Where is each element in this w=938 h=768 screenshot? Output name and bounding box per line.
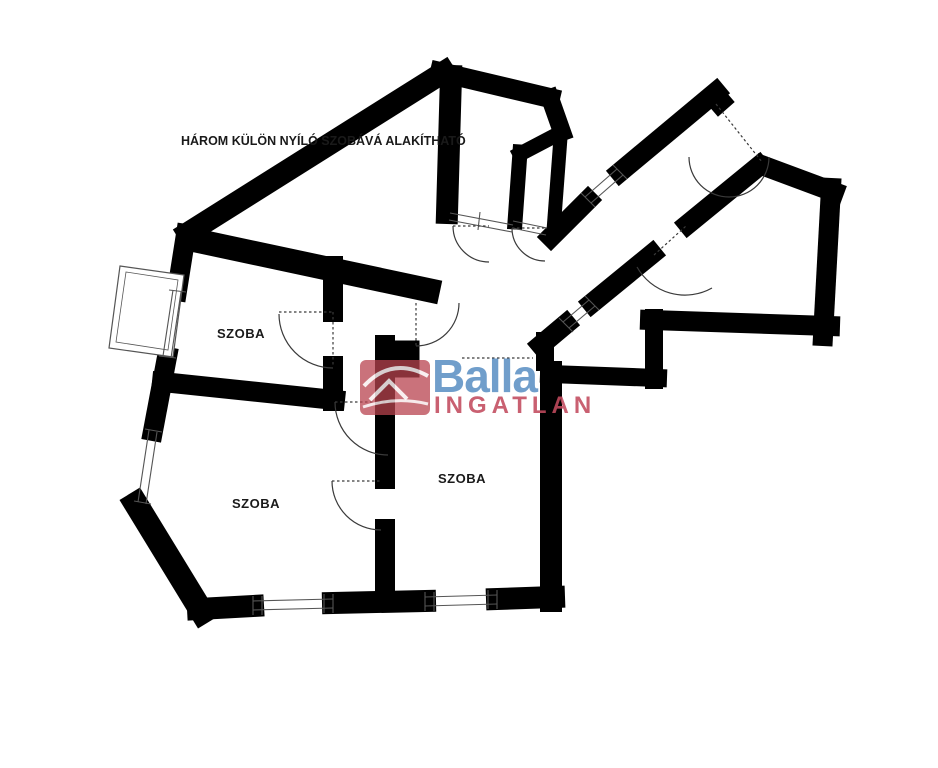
room-label-1: SZOBA [217,326,265,341]
logo-house-icon [360,360,430,415]
walls-group [136,72,834,612]
plan-title: HÁROM KÜLÖN NYÍLÓ SZOBÁVÁ ALAKÍTHATÓ [181,133,466,148]
logo-subtitle-text: INGATLAN [434,392,596,419]
floor-plan-page: HÁROM KÜLÖN NYÍLÓ SZOBÁVÁ ALAKÍTHATÓ SZO… [0,0,938,768]
room-label-2: SZOBA [232,496,280,511]
room-label-3: SZOBA [438,471,486,486]
floor-plan-svg: HÁROM KÜLÖN NYÍLÓ SZOBÁVÁ ALAKÍTHATÓ SZO… [0,0,938,768]
